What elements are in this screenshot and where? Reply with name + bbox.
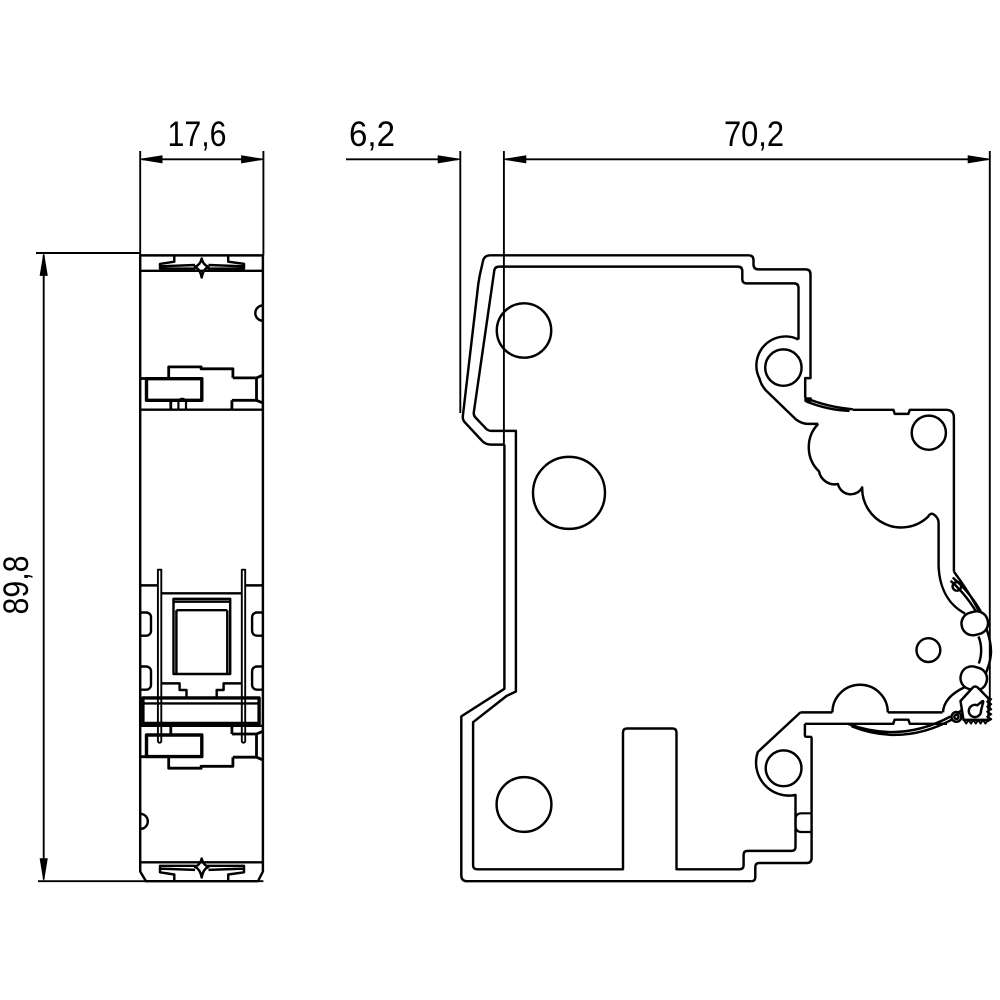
svg-text:70,2: 70,2 <box>724 115 784 154</box>
svg-text:6,2: 6,2 <box>349 115 395 154</box>
svg-text:89,8: 89,8 <box>0 556 36 615</box>
svg-text:17,6: 17,6 <box>168 115 227 154</box>
